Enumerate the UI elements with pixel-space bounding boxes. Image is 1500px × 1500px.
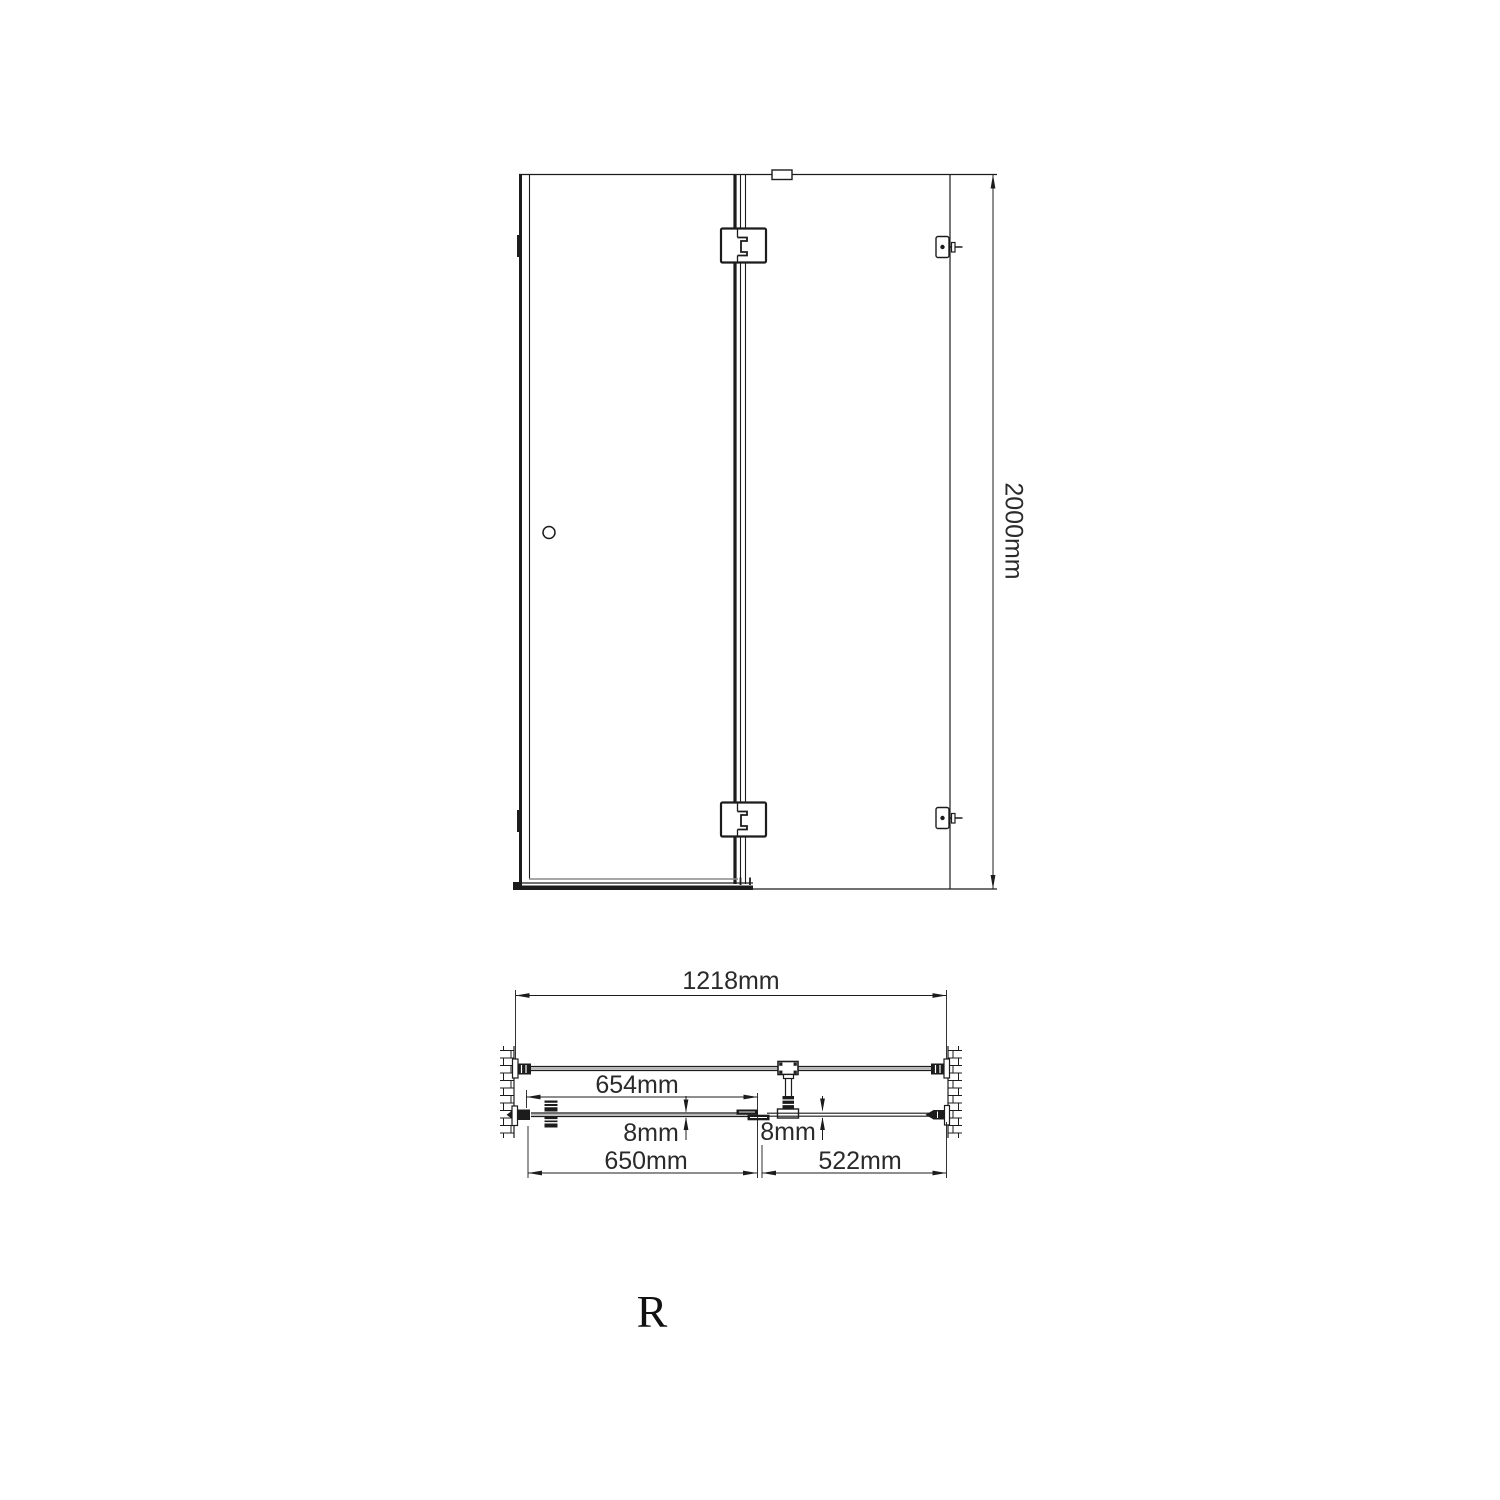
dimension-door-thickness-8: 8mm — [623, 1096, 688, 1147]
technical-drawing-page: 2000mm 1218mm — [0, 0, 1500, 1500]
left-wall-bracket-top — [517, 235, 522, 257]
arrow-left — [762, 1171, 776, 1176]
dimension-overall-1218: 1218mm — [516, 967, 947, 1062]
height-dimension-label: 2000mm — [999, 482, 1027, 579]
left-wall-bracket-bottom — [517, 810, 522, 832]
arm-knuckle — [783, 1096, 795, 1109]
wall-bracket-bottom — [936, 808, 963, 829]
arrow-up — [684, 1117, 689, 1130]
screw-dot — [940, 245, 944, 249]
door-plan — [507, 1101, 950, 1128]
arrow-left — [527, 1095, 541, 1100]
hinge-bottom — [721, 803, 766, 837]
arrow-right — [933, 993, 947, 998]
glass-width-label: 654mm — [595, 1071, 678, 1099]
arrow-left — [528, 1171, 542, 1176]
door-knob — [543, 527, 555, 539]
arrow-right — [933, 1171, 947, 1176]
support-arm — [778, 1062, 799, 1119]
handing-letter: R — [637, 1286, 668, 1337]
door-glass-thickness-label: 8mm — [623, 1119, 679, 1147]
threshold-profile — [513, 878, 753, 891]
overall-width-label: 1218mm — [682, 967, 779, 995]
top-support-bracket — [772, 170, 792, 180]
arrow-down — [991, 875, 996, 889]
back-panel-left-fitting — [513, 1059, 532, 1078]
plan-view: 1218mm — [500, 967, 962, 1178]
door-width-label: 650mm — [604, 1147, 687, 1175]
dimension-glass-654: 654mm — [527, 1071, 758, 1108]
arrow-down — [820, 1099, 825, 1112]
hinge-top — [721, 229, 766, 263]
shower-enclosure-drawing: 2000mm 1218mm — [0, 0, 1500, 1500]
back-panel-plan — [513, 1059, 950, 1118]
dimension-height-2000: 2000mm — [991, 175, 1028, 890]
side-panel-right-fitting — [926, 1106, 950, 1126]
panel-glass-thickness-label: 8mm — [760, 1118, 816, 1146]
arrow-right — [743, 1171, 757, 1176]
side-panel-width-label: 522mm — [818, 1147, 901, 1175]
front-elevation-view: 2000mm — [513, 170, 1027, 890]
arrow-down — [684, 1100, 689, 1113]
arrow-up — [820, 1117, 825, 1130]
arrow-up — [991, 175, 996, 189]
wall-bracket-top — [936, 237, 963, 258]
arrow-left — [516, 993, 530, 998]
screw-dot — [940, 816, 944, 820]
arrow-right — [744, 1095, 758, 1100]
back-panel-right-fitting — [931, 1059, 950, 1078]
